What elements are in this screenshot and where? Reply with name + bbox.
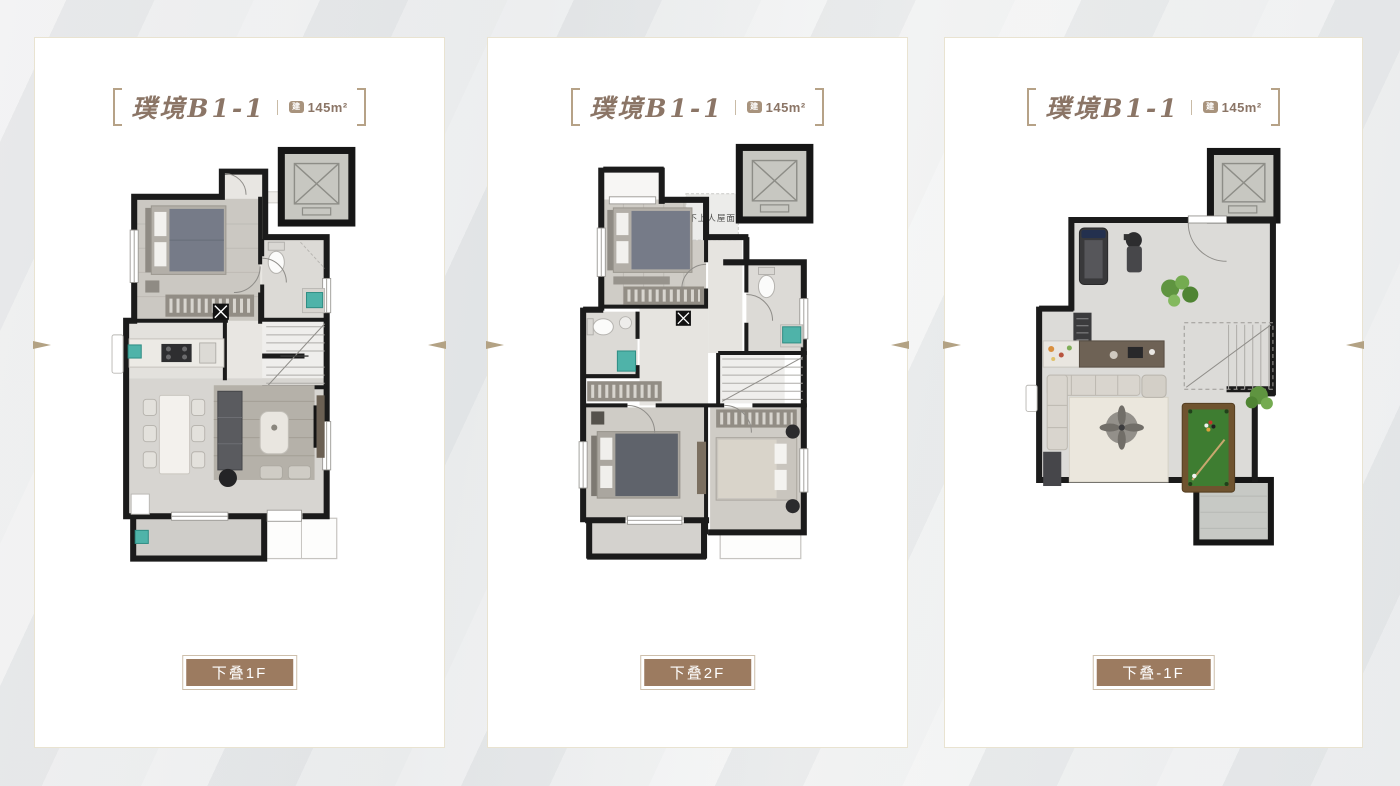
plan3-ac-unit [1026, 385, 1037, 411]
bracket-left [113, 88, 122, 126]
floor-tag: 下叠-1F [1096, 659, 1211, 686]
floor-tag: 下叠2F [644, 659, 752, 686]
floorplan-card-b1f[interactable]: 璞境B1-1 建 145m² [944, 37, 1363, 748]
plan1-dining [143, 395, 204, 474]
plan-title: 璞境B1-1 [131, 89, 265, 125]
title-divider [735, 100, 736, 115]
area-icon: 建 [1203, 101, 1218, 113]
title-divider [1191, 100, 1192, 115]
plan3-counter [1043, 341, 1164, 367]
area-value: 145m² [308, 100, 348, 115]
floorplan-card-2f[interactable]: 璞境B1-1 建 145m² 不上人屋面 [487, 37, 908, 748]
plan2-bedroom3 [716, 409, 800, 513]
frame-arrow-right-icon [1346, 341, 1364, 349]
plan-title: 璞境B1-1 [1045, 89, 1179, 125]
floor-plan-1f-svg [109, 141, 371, 565]
floor-tag: 下叠1F [186, 659, 294, 686]
bracket-left [1027, 88, 1036, 126]
bracket-right [815, 88, 824, 126]
floor-tag-frame: 下叠2F [640, 655, 756, 690]
area-icon: 建 [747, 101, 762, 113]
floorplan-card-1f[interactable]: 璞境B1-1 建 145m² [34, 37, 445, 748]
floor-plan-image-b1f[interactable] [945, 141, 1362, 565]
floor-plan-image-2f[interactable]: 不上人屋面 [488, 141, 907, 565]
plan1-living [213, 385, 324, 487]
plan-area: 建 145m² [289, 100, 348, 115]
plan-area: 建 145m² [747, 100, 806, 115]
floor-tag-frame: 下叠-1F [1092, 655, 1215, 690]
plan2-elevator [739, 147, 810, 220]
bracket-right [1271, 88, 1280, 126]
frame-arrow-right-icon [891, 341, 909, 349]
frame-arrow-left-icon [943, 341, 961, 349]
plan-title: 璞境B1-1 [589, 89, 723, 125]
bracket-right [357, 88, 366, 126]
bracket-left [571, 88, 580, 126]
plan3-elevator [1210, 151, 1277, 220]
frame-arrow-left-icon [486, 341, 504, 349]
area-icon: 建 [289, 101, 304, 113]
plan-title-block: 璞境B1-1 建 145m² [35, 87, 444, 127]
plan-title-block: 璞境B1-1 建 145m² [945, 87, 1362, 127]
plan-title-block: 璞境B1-1 建 145m² [488, 87, 907, 127]
floor-plan-2f-svg: 不上人屋面 [567, 141, 829, 565]
title-divider [277, 100, 278, 115]
frame-arrow-left-icon [33, 341, 51, 349]
area-value: 145m² [1222, 100, 1262, 115]
floor-plan-image-1f[interactable] [35, 141, 444, 565]
plan3-billiard-table [1182, 403, 1234, 492]
floor-tag-frame: 下叠1F [182, 655, 298, 690]
frame-arrow-right-icon [428, 341, 446, 349]
floor-plan-b1f-svg [1023, 141, 1285, 565]
plan-area: 建 145m² [1203, 100, 1262, 115]
area-value: 145m² [766, 100, 806, 115]
plan1-elevator [265, 150, 352, 223]
roof-note: 不上人屋面 [688, 213, 736, 224]
